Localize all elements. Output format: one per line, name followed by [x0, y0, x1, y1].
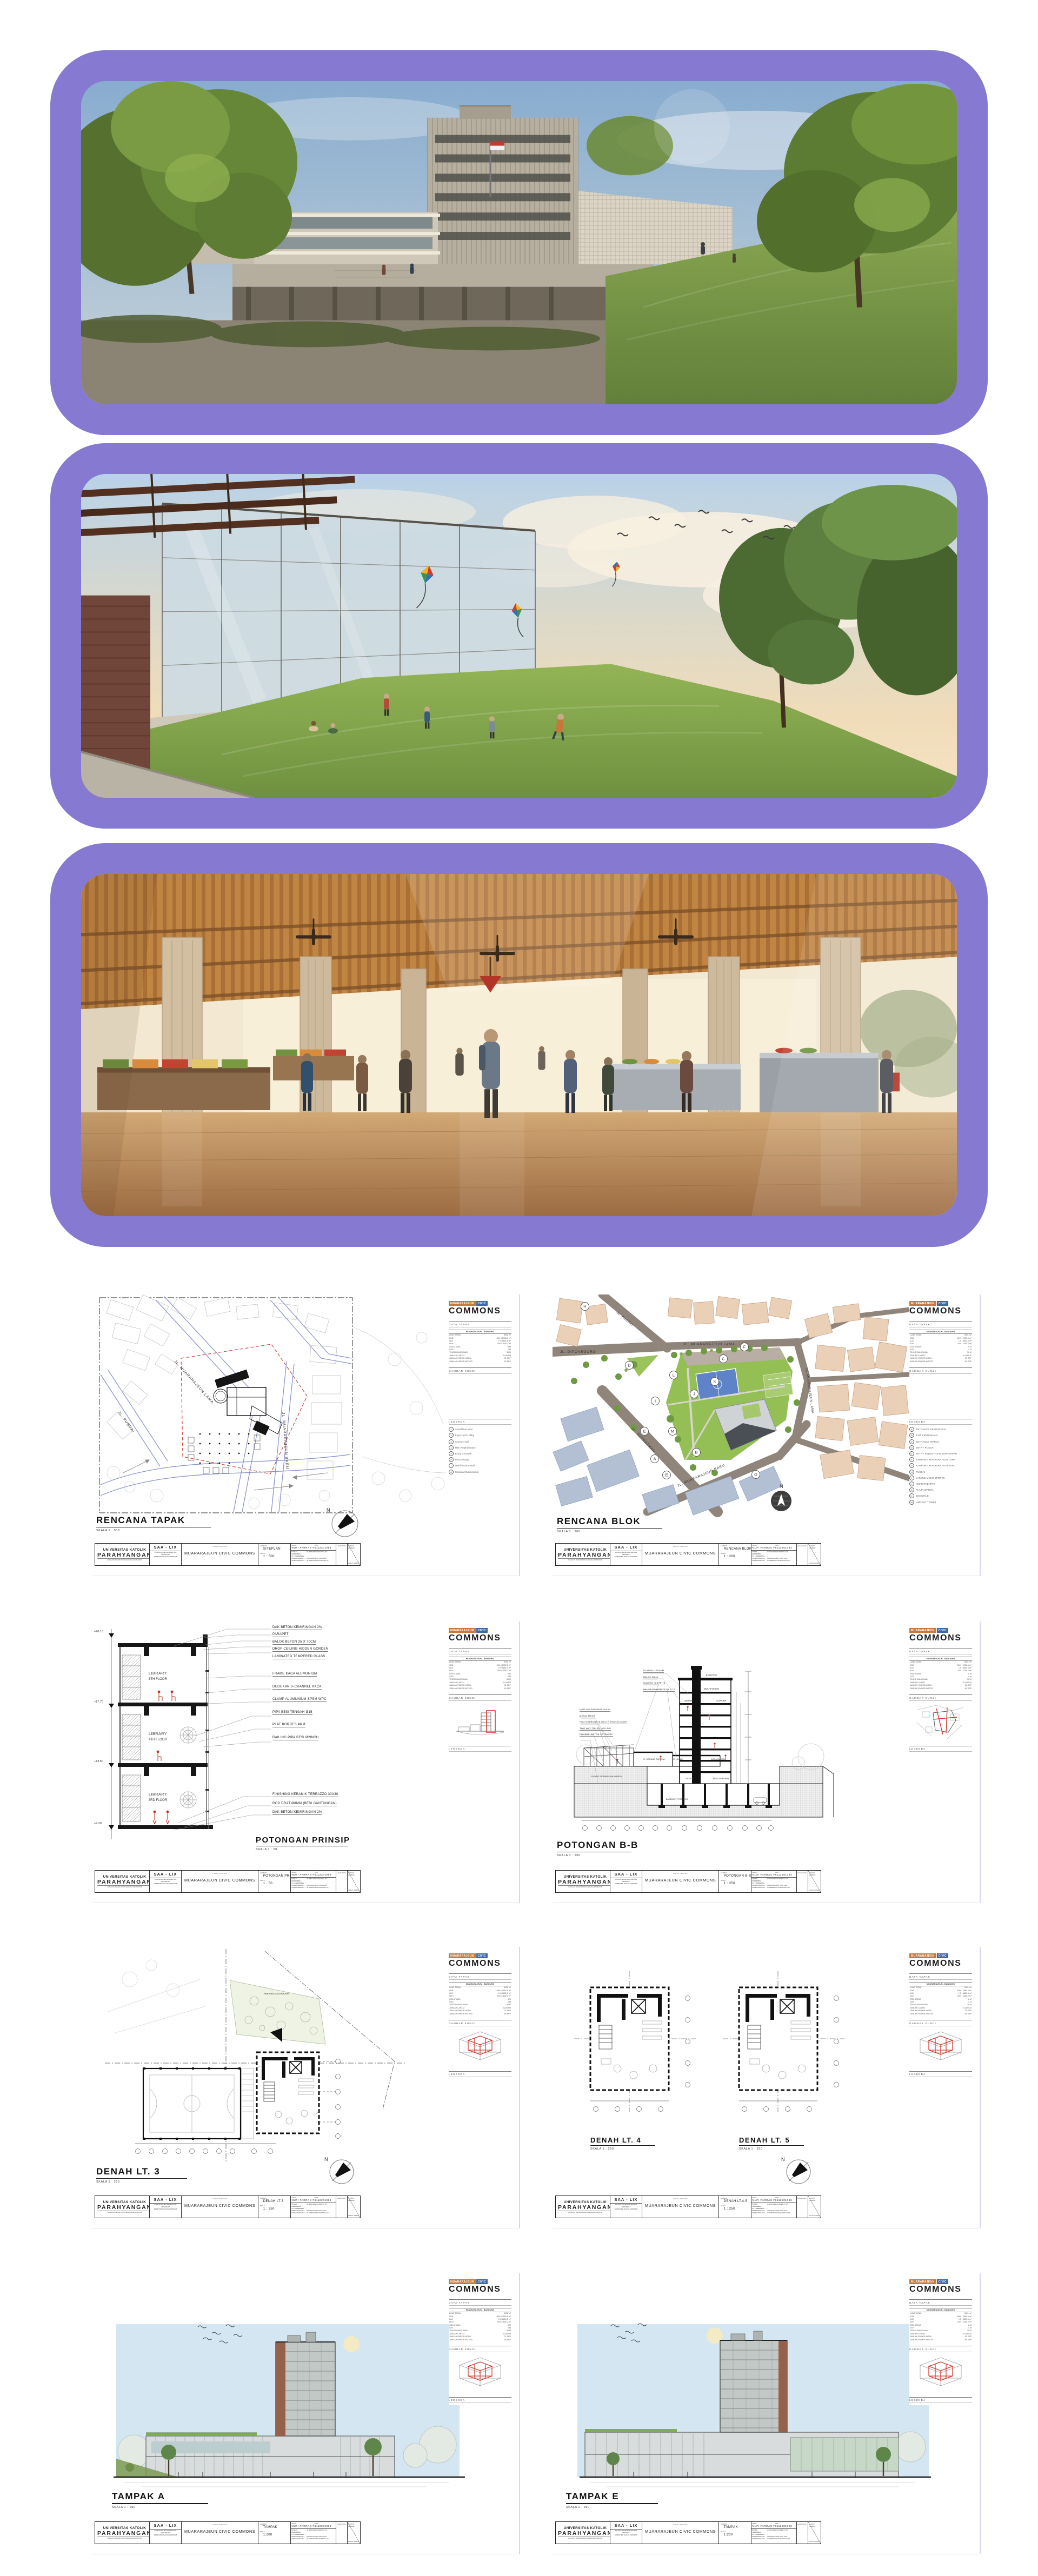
gambar-value: POTONGAN PRINSIP: [263, 1874, 289, 1878]
sheet-title: DENAH LT. 3 SKALA 1 : 250: [96, 2166, 187, 2184]
building-plan: [188, 1370, 282, 1473]
legend-row: ILAPANG MULTI SPORTS: [909, 1476, 972, 1480]
project-logo: MUARARAJEUN CIVIC COMMONS: [909, 1301, 972, 1316]
dosen-list: DOSEN PEMBIMBING: IR. MIRA DEWI PANGESTU…: [291, 2203, 336, 2214]
project-cell: JUDUL PROYEK MUARARAJEUN CIVIC COMMONS: [181, 1871, 257, 1892]
student-npm: 6112201063: [315, 2199, 335, 2201]
logo-word-civic: CIVIC: [937, 1301, 948, 1306]
logo-word-commons: COMMONS: [909, 1633, 972, 1643]
dosen-row: DOSEN PEMBIMBING: IR. MIRA DEWI PANGESTU…: [753, 1878, 796, 1883]
project-cell: JUDUL PROYEK MUARARAJEUN CIVIC COMMONS: [642, 1544, 718, 1565]
svg-text:N: N: [781, 2157, 785, 2162]
legalisasi-label: LEGALISASI :: [337, 2197, 347, 2199]
grid-bubbles: [582, 1820, 774, 1831]
nomor-lembar-label: NOMOR LEMBAR :: [809, 2197, 820, 2201]
project-title: MUARARAJEUN CIVIC COMMONS: [642, 1551, 718, 1556]
data-tapak-label: DATA TAPAK: [449, 2299, 511, 2306]
title-block: UNIVERSITAS KATOLIK PARAHYANGAN FAKULTAS…: [95, 1870, 361, 1893]
skala-label: SKALA :: [721, 2205, 749, 2207]
svg-text:RUANG SERBAGUNA WARGA: RUANG SERBAGUNA WARGA: [591, 1775, 622, 1778]
svg-text:AREA MAKAN: AREA MAKAN: [711, 1758, 725, 1760]
project-title: MUARARAJEUN CIVIC COMMONS: [182, 2529, 257, 2534]
logo-word-civic: CIVIC: [476, 1953, 488, 1958]
dosen-row: DOSEN PEMBIMBING: IR. MIRA DEWI PANGESTU…: [292, 2204, 335, 2208]
gambar-kunci-label: GAMBAR KUNCI: [909, 2346, 972, 2352]
data-tapak-row: JUMLAH PARKIR MOTOR69 SRP: [909, 1360, 972, 1363]
data-tapak-label: DATA TAPAK: [909, 1648, 972, 1654]
title-block: UNIVERSITAS KATOLIK PARAHYANGAN FAKULTAS…: [555, 1870, 821, 1893]
title-block: UNIVERSITAS KATOLIK PARAHYANGAN FAKULTAS…: [95, 2195, 361, 2218]
svg-text:5TH FLOOR: 5TH FLOOR: [149, 1678, 167, 1681]
university-cell: UNIVERSITAS KATOLIK PARAHYANGAN FAKULTAS…: [556, 2522, 610, 2544]
data-tapak-title: MUARARAJEUN - BANDUNG: [449, 1982, 511, 1986]
legalisasi-label: LEGALISASI :: [797, 2523, 807, 2525]
svg-text:BASEMENT PARKING: BASEMENT PARKING: [666, 1798, 688, 1800]
project-cell: JUDUL PROYEK MUARARAJEUN CIVIC COMMONS: [181, 1544, 257, 1565]
university-cell: UNIVERSITAS KATOLIK PARAHYANGAN FAKULTAS…: [556, 1871, 610, 1892]
svg-text:JL. MUARARAJEUN LAMA: JL. MUARARAJEUN LAMA: [683, 1343, 735, 1346]
student-name: NUFI FARRAS F: [753, 1546, 775, 1549]
dosen-row: DOSEN PEMBIMBING: IR. MIRA DEWI PANGESTU…: [753, 2530, 796, 2534]
dosen-row: DOSEN PEMBIMBING: IR. MIRA DEWI PANGESTU…: [292, 2530, 335, 2534]
plan-lt4: [574, 1971, 696, 2112]
scale-note: SKALA 1 : 250: [96, 2180, 187, 2184]
nomor-lembar-label: NOMOR LEMBAR :: [809, 1872, 820, 1876]
nomor-lembar-label: NOMOR LEMBAR :: [348, 2523, 360, 2527]
university-line2: PARAHYANGAN: [97, 2204, 149, 2211]
logo-word-commons: COMMONS: [909, 2285, 972, 2294]
title-underline: [557, 1528, 662, 1529]
legalisasi-label: LEGALISASI :: [797, 1545, 807, 1547]
project-cell: JUDUL PROYEK MUARARAJEUN CIVIC COMMONS: [642, 1871, 718, 1892]
north-compass: N: [327, 1507, 358, 1537]
skala-label: SKALA :: [260, 2205, 289, 2207]
legend-row: BEXIT KENDARAAN: [909, 1433, 972, 1438]
plan-lt5: [723, 1971, 844, 2112]
skala-value: 1:200: [263, 2533, 289, 2537]
lembar-cell: NOMOR LEMBAR : JUMLAH LEMBAR :: [347, 1544, 360, 1565]
judul-proyek-label: JUDUL PROYEK: [642, 2198, 718, 2200]
dosen-row: DOSEN PEMBIMBING: IR. MIRA DEWI PANGESTU…: [292, 1551, 335, 1556]
identity-cell: NAMA : NUFI FARRAS F NPM : 6112201063 DO…: [290, 2196, 336, 2218]
identity-cell: NAMA : NUFI FARRAS F NPM : 6112201063 DO…: [751, 2196, 797, 2218]
svg-text:LIBRARY: LIBRARY: [684, 1699, 694, 1702]
context-blocks: [107, 1295, 342, 1479]
dosen-list: DOSEN PEMBIMBING: IR. MIRA DEWI PANGESTU…: [751, 2529, 797, 2540]
faculty-line: FAKULTAS TEKNIK PRODI SARJANA ARSITEKTUR: [97, 1885, 149, 1888]
university-line1: UNIVERSITAS KATOLIK: [558, 1548, 610, 1552]
project-title: MUARARAJEUN CIVIC COMMONS: [642, 2529, 718, 2534]
judul-proyek-label: JUDUL PROYEK: [642, 2524, 718, 2526]
project-logo: MUARARAJEUN CIVIC COMMONS: [909, 1628, 972, 1643]
gambar-skala-cell: GAMBAR : SITEPLAN SKALA : 1 : 500: [258, 1544, 290, 1565]
judul-proyek-label: JUDUL PROYEK: [182, 2198, 257, 2200]
dosen-list: DOSEN PEMBIMBING: IR. MIRA DEWI PANGESTU…: [751, 2203, 797, 2214]
university-cell: UNIVERSITAS KATOLIK PARAHYANGAN FAKULTAS…: [556, 2196, 610, 2218]
project-logo: MUARARAJEUN CIVIC COMMONS: [449, 1628, 511, 1643]
render-frame-rooftop: [50, 443, 988, 829]
studio-line3: SEMESTER GANJIL 2025/2026: [610, 2534, 642, 2536]
logo-word-civic: CIVIC: [937, 1953, 948, 1958]
legalisasi-cell: LEGALISASI :: [796, 1871, 808, 1892]
rooftop-render-art: [81, 474, 957, 798]
data-tapak-title: MUARARAJEUN - BANDUNG: [909, 2308, 972, 2312]
scale-note: SKALA 1 : 250: [566, 2506, 658, 2509]
svg-text:D: D: [628, 1363, 631, 1368]
legalisasi-label: LEGALISASI :: [797, 2197, 807, 2199]
sheet-title: POTONGAN B-B SKALA 1 : 250: [557, 1840, 638, 1857]
data-tapak-title: MUARARAJEUN - BANDUNG: [449, 1330, 511, 1334]
tower-section: [678, 1666, 741, 1784]
title-underline: [566, 2503, 658, 2504]
legend-row: DENTRY PUSDAI: [909, 1445, 972, 1450]
data-tapak-title: MUARARAJEUN - BANDUNG: [909, 1982, 972, 1986]
gambar-label: GAMBAR :: [260, 1545, 289, 1547]
scale-note: SKALA 1 : 200: [557, 1530, 662, 1533]
university-cell: UNIVERSITAS KATOLIK PARAHYANGAN FAKULTAS…: [95, 1544, 149, 1565]
identity-cell: NAMA : NUFI FARRAS F NPM : 6112201063 DO…: [290, 1544, 336, 1565]
data-tapak-row: JUMLAH PARKIR MOTOR69 SRP: [909, 2012, 972, 2015]
university-cell: UNIVERSITAS KATOLIK PARAHYANGAN FAKULTAS…: [95, 2522, 149, 2544]
svg-text:R. KARANG TARUNA: R. KARANG TARUNA: [643, 1758, 665, 1760]
skala-label: SKALA :: [721, 1879, 749, 1881]
sheet-sidebar: MUARARAJEUN CIVIC COMMONS DATA TAPAK MUA…: [909, 2279, 972, 2405]
studio-code: SAA - LIX: [150, 2196, 182, 2204]
gambar-kunci-thumbnail: [449, 2354, 511, 2392]
title-underline: [256, 1846, 348, 1846]
level-ticks: [745, 1671, 751, 1784]
gambar-label: GAMBAR :: [260, 1872, 289, 1874]
exterior-render-art: [81, 81, 957, 404]
logo-word-civic: CIVIC: [476, 1628, 488, 1633]
skala-value: 1 : 50: [263, 1882, 289, 1885]
svg-text:C: C: [722, 1357, 725, 1362]
legend-row: 3Commercial: [449, 1439, 511, 1444]
svg-text:N: N: [780, 1484, 783, 1489]
grid-right: [319, 2059, 341, 2139]
legalisasi-cell: LEGALISASI :: [796, 2522, 808, 2544]
legend-row: 1Streetfood Kios: [449, 1427, 511, 1432]
red-figures: [153, 1691, 175, 1824]
legend-row: EENTRY PEDESTRIAN SUPRATMAN: [909, 1451, 972, 1456]
gambar-skala-cell: GAMBAR : POTONGAN B-B SKALA : 1 : 250: [718, 1871, 751, 1892]
data-tapak-table: MUARARAJEUN - BANDUNG LUAS TAPAK5901 m² …: [909, 1330, 972, 1363]
annotations-left: HOLLOW GALVANIS 40X40METAL MESHPOLYCARBO…: [580, 1708, 628, 1737]
data-tapak-label: DATA TAPAK: [449, 1973, 511, 1980]
gambar-skala-cell: GAMBAR : TAMPAK SKALA : 1:200: [718, 2522, 751, 2544]
dosen-row: DOSEN PENGUJI 2: IR. AMIRANI RITVA SANTO…: [292, 2538, 335, 2540]
studio-code: SAA - LIX: [610, 1871, 642, 1878]
sheet-potongan-bb: ROOFTOP MULTIFUNGSI LIBRARY COWORK R. KA…: [553, 1621, 981, 1903]
sheet-sidebar: MUARARAJEUN CIVIC COMMONS DATA TAPAK MUA…: [909, 1628, 972, 1754]
university-line1: UNIVERSITAS KATOLIK: [97, 1548, 149, 1552]
data-tapak-label: DATA TAPAK: [449, 1648, 511, 1654]
student-name: NUFI FARRAS F: [292, 1546, 315, 1549]
nomor-lembar-label: NOMOR LEMBAR :: [809, 2523, 820, 2527]
university-line1: UNIVERSITAS KATOLIK: [558, 2526, 610, 2530]
svg-text:R. KLINIK: R. KLINIK: [673, 1758, 683, 1760]
key-plan-axon-thumb: [454, 2354, 506, 2392]
annotations-mid: PLAFON GYPSUMBALOK BAJARUMPUT SINTETISBA…: [643, 1669, 675, 1692]
student-name: NUFI FARRAS F: [753, 2525, 775, 2527]
svg-text:I: I: [655, 1399, 656, 1404]
svg-text:FOYER: FOYER: [686, 1777, 694, 1780]
jumlah-lembar-label: JUMLAH LEMBAR :: [809, 2541, 820, 2542]
project-title: MUARARAJEUN CIVIC COMMONS: [642, 1878, 718, 1883]
legalisasi-label: LEGALISASI :: [337, 1872, 347, 1874]
sheet-tampak-a: TAMPAK A SKALA 1 : 250 MUARARAJEUN CIVIC…: [92, 2273, 520, 2554]
studio-code: SAA - LIX: [610, 2196, 642, 2204]
logo-word-muararajeun: MUARARAJEUN: [449, 1301, 476, 1306]
jumlah-lembar-label: JUMLAH LEMBAR :: [348, 2215, 360, 2217]
university-cell: UNIVERSITAS KATOLIK PARAHYANGAN FAKULTAS…: [556, 1544, 610, 1565]
dosen-row: DOSEN PENGUJI 2: IR. AMIRANI RITVA SANTO…: [292, 1887, 335, 1889]
university-line2: PARAHYANGAN: [558, 2530, 610, 2537]
svg-text:H: H: [583, 1304, 586, 1309]
gambar-value: POTONGAN B-B: [724, 1874, 749, 1878]
sheet-title-text: RENCANA TAPAK: [96, 1515, 211, 1526]
lembar-cell: NOMOR LEMBAR : JUMLAH LEMBAR :: [808, 1544, 821, 1565]
svg-text:+13.50: +13.50: [94, 1760, 103, 1763]
student-npm: 6112201063: [315, 1546, 335, 1549]
dosen-row: DOSEN PENGUJI 2: IR. AMIRANI RITVA SANTO…: [753, 1560, 796, 1562]
svg-text:AREA BACA OUTDOOR: AREA BACA OUTDOOR: [264, 1992, 289, 1995]
faculty-line: FAKULTAS TEKNIK PRODI SARJANA ARSITEKTUR: [97, 1558, 149, 1561]
svg-text:M: M: [671, 1429, 674, 1434]
logo-word-civic: CIVIC: [937, 2279, 948, 2284]
sheet-title: TAMPAK E SKALA 1 : 250: [566, 2491, 658, 2509]
scale-note: SKALA 1 : 500: [96, 1529, 211, 1532]
title-block: UNIVERSITAS KATOLIK PARAHYANGAN FAKULTAS…: [95, 1543, 361, 1566]
data-tapak-table: MUARARAJEUN - BANDUNG LUAS TAPAK5901 m² …: [449, 2308, 511, 2341]
university-line1: UNIVERSITAS KATOLIK: [97, 2526, 149, 2530]
legend-row: 7Multifunction Hall: [449, 1463, 511, 1468]
logo-word-commons: COMMONS: [449, 1633, 511, 1643]
svg-text:E: E: [643, 1429, 646, 1434]
gambar-label: GAMBAR :: [721, 2197, 749, 2199]
faculty-line: FAKULTAS TEKNIK PRODI SARJANA ARSITEKTUR: [558, 2537, 610, 2539]
title-block: UNIVERSITAS KATOLIK PARAHYANGAN FAKULTAS…: [555, 2195, 821, 2218]
data-tapak-row: JUMLAH PARKIR MOTOR69 SRP: [449, 2338, 511, 2341]
logo-word-muararajeun: MUARARAJEUN: [909, 1301, 936, 1306]
studio-line3: SEMESTER GANJIL 2025/2026: [610, 1556, 642, 1558]
data-tapak-label: DATA TAPAK: [449, 1321, 511, 1327]
skala-label: SKALA :: [260, 1879, 289, 1881]
dosen-list: DOSEN PEMBIMBING: IR. MIRA DEWI PANGESTU…: [291, 2529, 336, 2540]
university-line1: UNIVERSITAS KATOLIK: [97, 2200, 149, 2204]
judul-proyek-label: JUDUL PROYEK: [182, 2524, 257, 2526]
lembar-cell: NOMOR LEMBAR : JUMLAH LEMBAR :: [347, 1871, 360, 1892]
student-name: NUFI FARRAS F: [292, 1873, 315, 1876]
gambar-value: DENAH LT.3: [263, 2200, 289, 2203]
svg-text:A: A: [653, 1457, 656, 1461]
nomor-lembar-label: NOMOR LEMBAR :: [348, 1872, 360, 1876]
studio-cell: SAA - LIX STUDIO AKHIR ARSITEKTUR ARS234…: [610, 2522, 642, 2544]
skala-label: SKALA :: [721, 2531, 749, 2533]
sheet-sidebar: MUARARAJEUN CIVIC COMMONS DATA TAPAK MUA…: [449, 1301, 511, 1476]
gambar-kunci-thumbnail: [449, 1376, 511, 1414]
dosen-row: DOSEN PEMBIMBING: IR. MIRA DEWI PANGESTU…: [292, 1878, 335, 1883]
legend-row: 6Plaza Warga: [449, 1457, 511, 1462]
student-npm: 6112201063: [775, 2525, 795, 2527]
student-npm: 6112201063: [775, 1873, 795, 1876]
sheet-denah-lt3: AREA BACA OUTDOOR: [92, 1947, 520, 2228]
title-underline: [557, 1852, 631, 1852]
skala-value: 1 : 200: [724, 1555, 749, 1558]
sheet-rencana-tapak: JL. PUSDAI JL. MUARARAJEUN LAMA JL. MUAR…: [92, 1294, 520, 1576]
logo-word-muararajeun: MUARARAJEUN: [909, 1628, 936, 1633]
legenda-label: LEGENDA: [449, 1419, 511, 1425]
identity-cell: NAMA : NUFI FARRAS F NPM : 6112201063 DO…: [751, 1871, 797, 1892]
svg-text:AREA GEROBAK: AREA GEROBAK: [713, 1777, 730, 1780]
legenda-label: LEGENDA: [909, 1746, 972, 1752]
lembar-cell: NOMOR LEMBAR : JUMLAH LEMBAR :: [808, 2196, 821, 2218]
context-trees: [107, 1332, 444, 1509]
gambar-label: GAMBAR :: [721, 2523, 749, 2525]
project-cell: JUDUL PROYEK MUARARAJEUN CIVIC COMMONS: [181, 2522, 257, 2544]
data-tapak-table: MUARARAJEUN - BANDUNG LUAS TAPAK5901 m² …: [449, 1330, 511, 1363]
svg-text:E: E: [665, 1473, 668, 1478]
lembar-cell: NOMOR LEMBAR : JUMLAH LEMBAR :: [347, 2522, 360, 2544]
legenda-list: AENTRANCE KENDARAAN BEXIT KENDARAAN CENT…: [909, 1427, 972, 1504]
studio-line3: SEMESTER GANJIL 2025/2026: [610, 1883, 642, 1885]
dosen-row: DOSEN PENGUJI 2: IR. AMIRANI RITVA SANTO…: [753, 2212, 796, 2214]
legalisasi-cell: LEGALISASI :: [336, 1544, 347, 1565]
dosen-list: DOSEN PEMBIMBING: IR. MIRA DEWI PANGESTU…: [291, 1878, 336, 1889]
jumlah-lembar-label: JUMLAH LEMBAR :: [809, 2215, 820, 2217]
sheet-rencana-blok: JL. DIPONEGORO JL. PUSDAI JL. MUARARAJEU…: [553, 1294, 981, 1576]
title-block: UNIVERSITAS KATOLIK PARAHYANGAN FAKULTAS…: [555, 1543, 821, 1566]
sheet-title-lt5: DENAH LT. 5 SKALA 1 : 250: [739, 2136, 804, 2151]
studio-code: SAA - LIX: [610, 2522, 642, 2530]
project-cell: JUDUL PROYEK MUARARAJEUN CIVIC COMMONS: [642, 2196, 718, 2218]
logo-word-commons: COMMONS: [449, 1959, 511, 1968]
gambar-kunci-label: GAMBAR KUNCI: [909, 2020, 972, 2026]
legend-row: FKAMPUNG MUARARAJEUN LAMA: [909, 1457, 972, 1462]
key-plan-axon-thumb: [454, 2028, 506, 2066]
legend-row: GKAMPUNG MUARARAJEUN BARU: [909, 1463, 972, 1468]
gambar-label: GAMBAR :: [721, 1545, 749, 1547]
data-tapak-table: MUARARAJEUN - BANDUNG LUAS TAPAK5901 m² …: [909, 1657, 972, 1690]
gambar-kunci-thumbnail: [909, 2354, 972, 2392]
render-frame-exterior: [50, 50, 988, 435]
logo-word-commons: COMMONS: [909, 1959, 972, 1968]
faculty-line: FAKULTAS TEKNIK PRODI SARJANA ARSITEKTUR: [97, 2211, 149, 2213]
svg-text:JL. MUARARAJEUN BARU: JL. MUARARAJEUN BARU: [281, 1412, 289, 1470]
legenda-label: LEGENDA: [909, 1419, 972, 1425]
greenhouse: [584, 1745, 634, 1766]
legalisasi-label: LEGALISASI :: [797, 1872, 807, 1874]
sheet-sidebar: MUARARAJEUN CIVIC COMMONS DATA TAPAK MUA…: [449, 1628, 511, 1754]
legend-row: 2Foyer and Lobby: [449, 1433, 511, 1438]
identity-cell: NAMA : NUFI FARRAS F NPM : 6112201063 DO…: [751, 1544, 797, 1565]
faculty-line: FAKULTAS TEKNIK PRODI SARJANA ARSITEKTUR: [558, 2211, 610, 2213]
svg-text:+17.70: +17.70: [94, 1700, 103, 1704]
legend-row: CENTRANCE WARGA: [909, 1439, 972, 1444]
key-plan-map-thumb: [915, 1703, 967, 1741]
university-line2: PARAHYANGAN: [558, 2204, 610, 2211]
logo-word-civic: CIVIC: [937, 1628, 948, 1633]
student-npm: 6112201063: [315, 2525, 335, 2527]
dosen-row: DOSEN PENGUJI 2: IR. AMIRANI RITVA SANTO…: [292, 2212, 335, 2214]
svg-text:MULTIFUNGSI: MULTIFUNGSI: [704, 1687, 719, 1690]
project-title: MUARARAJEUN CIVIC COMMONS: [182, 2203, 257, 2208]
data-tapak-row: JUMLAH PARKIR MOTOR69 SRP: [909, 1687, 972, 1690]
university-line1: UNIVERSITAS KATOLIK: [97, 1875, 149, 1879]
student-name: NUFI FARRAS F: [292, 2525, 315, 2527]
lembar-cell: NOMOR LEMBAR : JUMLAH LEMBAR :: [808, 1871, 821, 1892]
legenda-list: 1Streetfood Kios 2Foyer and Lobby 3Comme…: [449, 1427, 511, 1474]
lembar-cell: NOMOR LEMBAR : JUMLAH LEMBAR :: [808, 2522, 821, 2544]
project-title: MUARARAJEUN CIVIC COMMONS: [642, 2203, 718, 2208]
svg-text:ROOFTOP: ROOFTOP: [706, 1674, 717, 1677]
key-plan-axon-thumb: [915, 2354, 967, 2392]
university-cell: UNIVERSITAS KATOLIK PARAHYANGAN FAKULTAS…: [95, 1871, 149, 1892]
sheet-title: RENCANA BLOK SKALA 1 : 200: [557, 1516, 662, 1533]
logo-word-muararajeun: MUARARAJEUN: [909, 1953, 936, 1958]
portfolio-page: JL. PUSDAI JL. MUARARAJEUN LAMA JL. MUAR…: [0, 0, 1038, 2576]
legend-row: AENTRANCE KENDARAAN: [909, 1427, 972, 1432]
svg-text:COWORK: COWORK: [716, 1699, 727, 1702]
market-render-art: [81, 874, 957, 1216]
key-plan-section-thumb: [454, 1703, 506, 1738]
judul-proyek-label: JUDUL PROYEK: [182, 1545, 257, 1547]
judul-proyek-label: JUDUL PROYEK: [642, 1872, 718, 1874]
scale-note: SKALA 1 : 250: [590, 2147, 655, 2151]
sheet-potongan-prinsip: +26.10 +17.70 +13.50 +9.30: [92, 1621, 520, 1903]
legalisasi-cell: LEGALISASI :: [796, 1544, 808, 1565]
logo-word-commons: COMMONS: [449, 2285, 511, 2294]
gambar-skala-cell: GAMBAR : DENAH LT.3 SKALA : 1 : 250: [258, 2196, 290, 2218]
sheet-title-text: RENCANA BLOK: [557, 1516, 662, 1527]
data-tapak-table: MUARARAJEUN - BANDUNG LUAS TAPAK5901 m² …: [909, 1982, 972, 2016]
legalisasi-cell: LEGALISASI :: [336, 2522, 347, 2544]
tower-elevation: [276, 2332, 335, 2436]
project-logo: MUARARAJEUN CIVIC COMMONS: [449, 1953, 511, 1968]
legalisasi-cell: LEGALISASI :: [796, 2196, 808, 2218]
gambar-kunci-thumbnail: [449, 2028, 511, 2066]
annotations-bottom: FINISHING KERAMIK TERRAZZO 30X30ROD DRAT…: [272, 1793, 338, 1815]
student-npm: 6112201063: [775, 2199, 795, 2201]
site-area: [666, 1347, 793, 1460]
skala-value: 1:200: [724, 2533, 749, 2537]
svg-text:LIBRARY: LIBRARY: [149, 1732, 167, 1736]
annotations-middle: FRAME KACA ALUMUNIUMDUDUKAN U-CHANNEL KA…: [272, 1672, 327, 1740]
project-cell: JUDUL PROYEK MUARARAJEUN CIVIC COMMONS: [181, 2196, 257, 2218]
jumlah-lembar-label: JUMLAH LEMBAR :: [348, 1890, 360, 1891]
gambar-skala-cell: GAMBAR : POTONGAN PRINSIP SKALA : 1 : 50: [258, 1871, 290, 1892]
tower-plan: [257, 2028, 319, 2133]
sheet-title-text: DENAH LT. 4: [590, 2136, 655, 2144]
scale-note: SKALA 1 : 250: [557, 1854, 638, 1857]
legalisasi-label: LEGALISASI :: [337, 2523, 347, 2525]
skala-value: 1 : 250: [263, 2207, 289, 2211]
gambar-label: GAMBAR :: [721, 1872, 749, 1874]
sheet-title-text: DENAH LT. 3: [96, 2166, 187, 2177]
studio-cell: SAA - LIX STUDIO AKHIR ARSITEKTUR ARS234…: [610, 1871, 642, 1892]
title-underline: [590, 2145, 655, 2146]
studio-line3: SEMESTER GANJIL 2025/2026: [150, 1883, 182, 1885]
rooftop-render-image: [81, 474, 957, 798]
faculty-line: FAKULTAS TEKNIK PRODI SARJANA ARSITEKTUR: [558, 1558, 610, 1561]
gambar-kunci-thumbnail: [909, 1703, 972, 1741]
studio-code: SAA - LIX: [610, 1544, 642, 1551]
data-tapak-table: MUARARAJEUN - BANDUNG LUAS TAPAK5901 m² …: [449, 1982, 511, 2016]
university-line2: PARAHYANGAN: [97, 2530, 149, 2537]
data-tapak-title: MUARARAJEUN - BANDUNG: [449, 2308, 511, 2312]
sheet-title-text: POTONGAN B-B: [557, 1840, 638, 1851]
logo-word-muararajeun: MUARARAJEUN: [449, 1628, 476, 1633]
